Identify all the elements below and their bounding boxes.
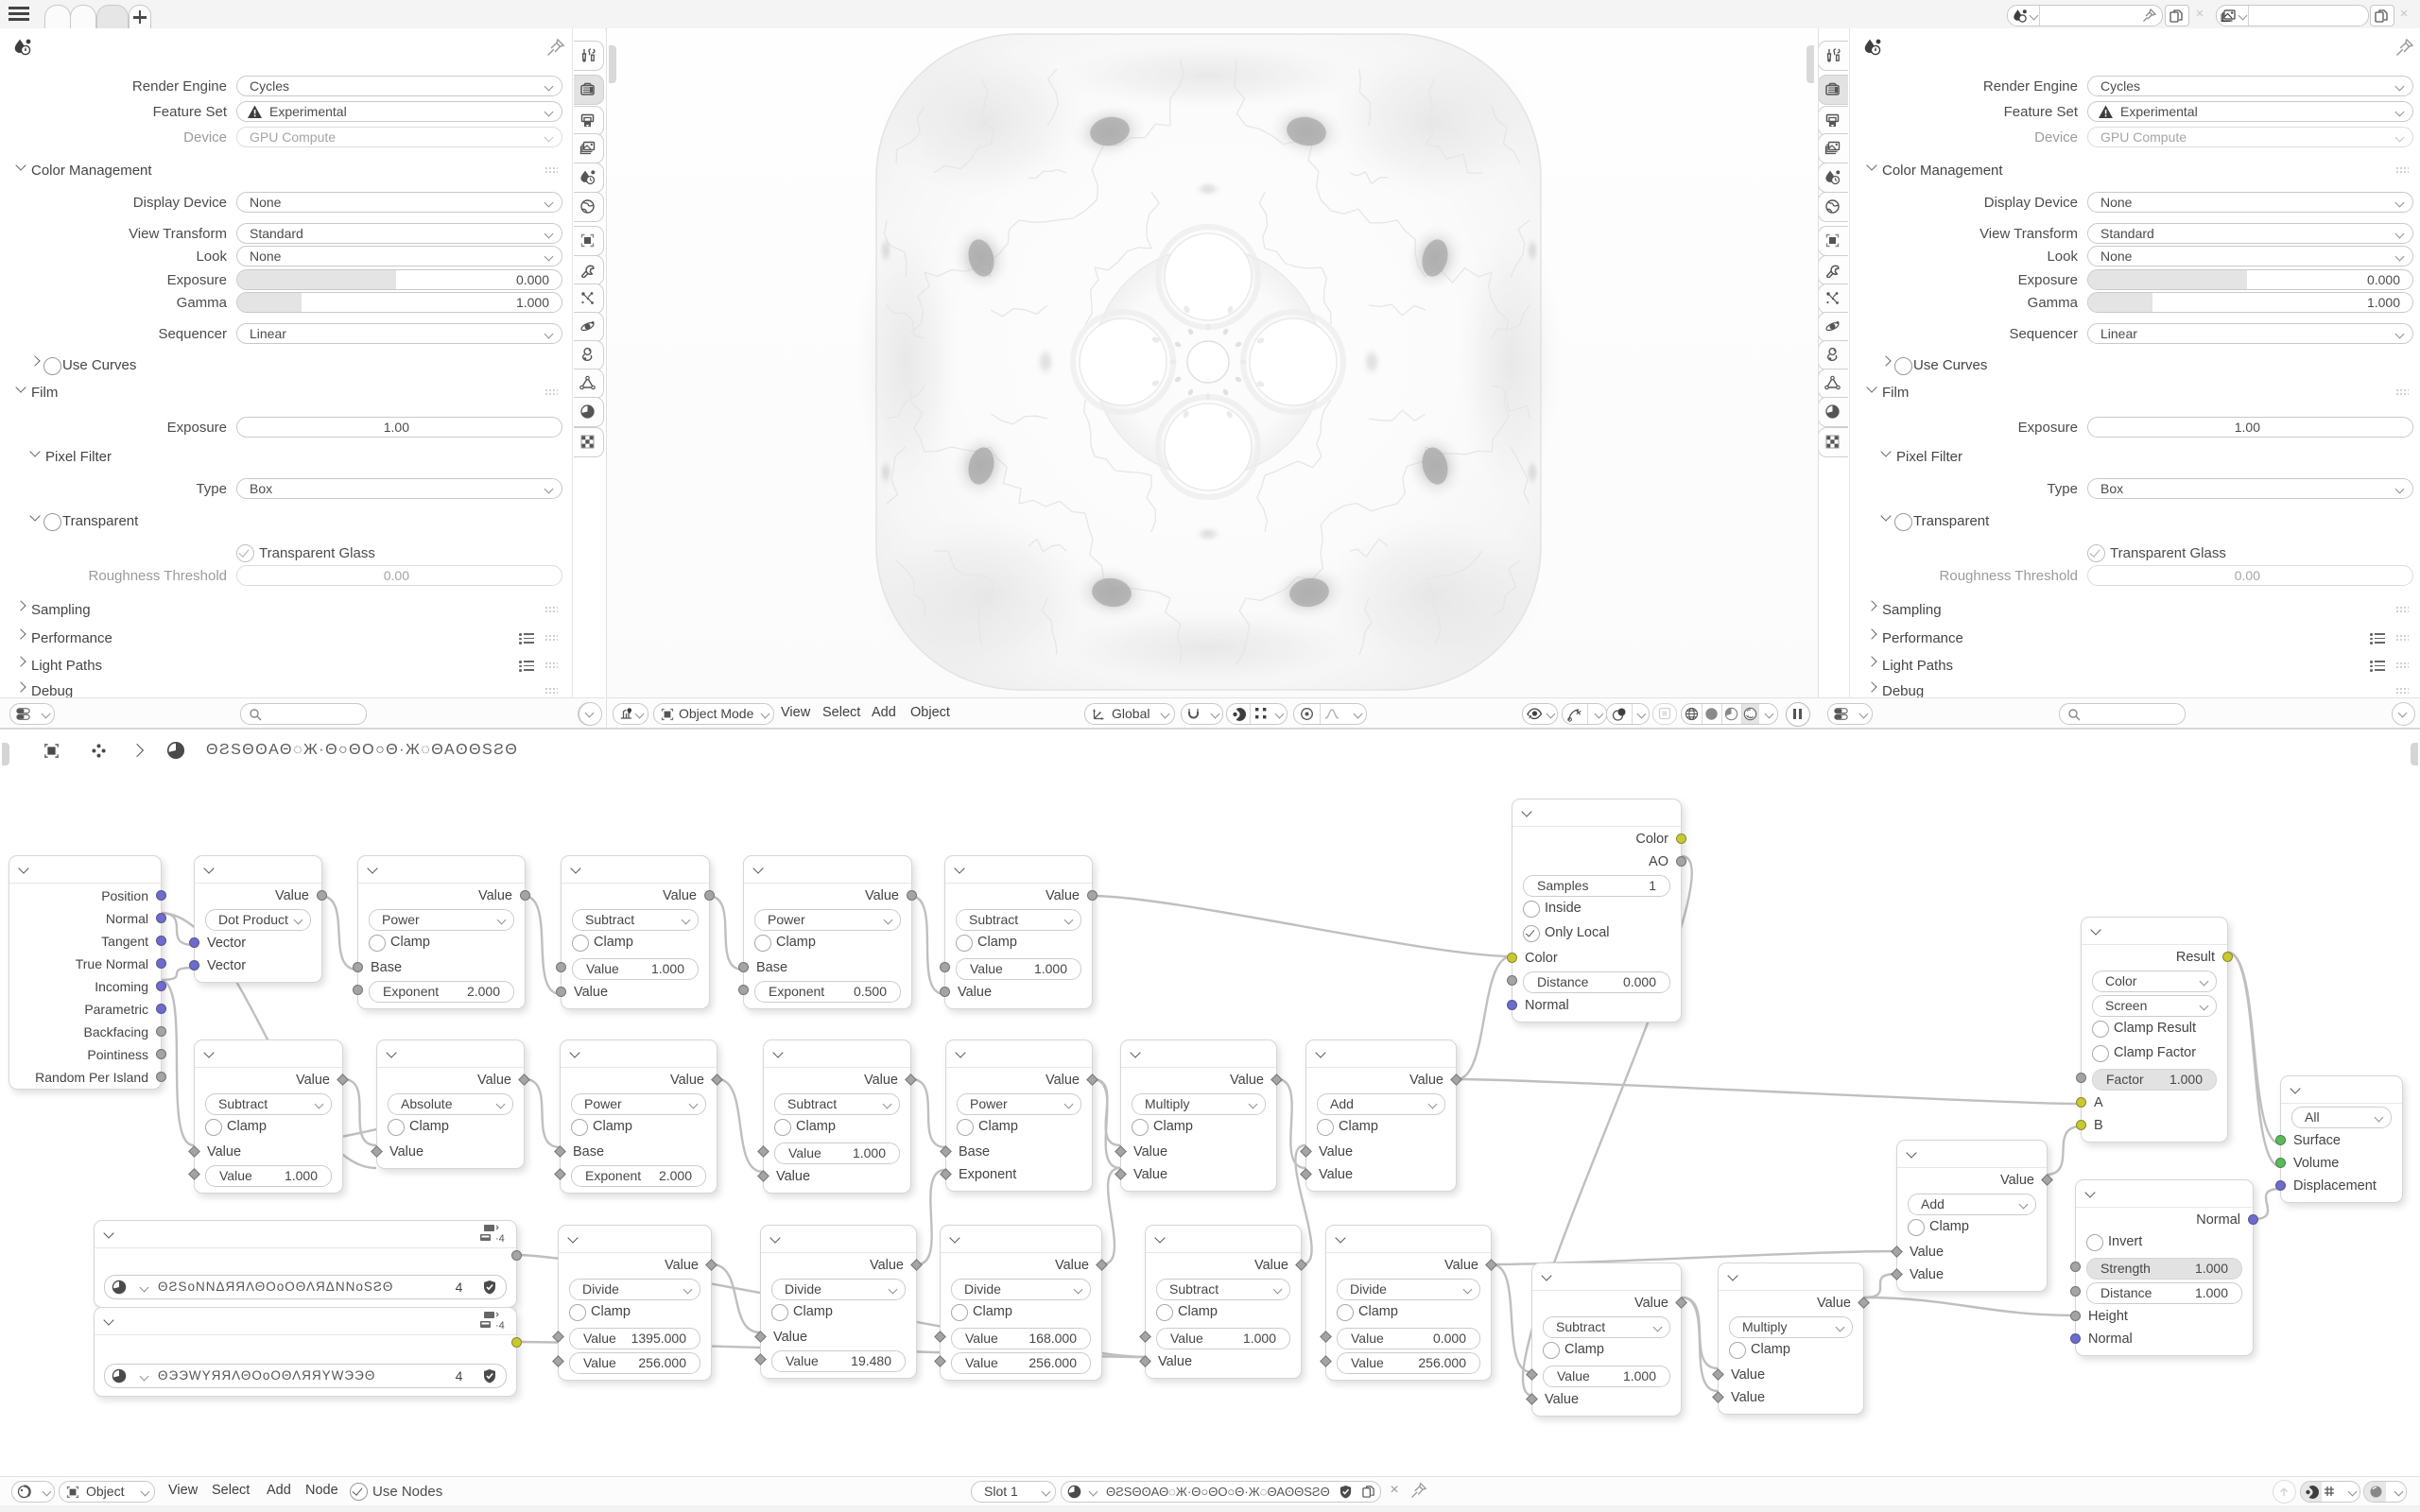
svg-text:·4: ·4 xyxy=(495,1233,505,1245)
svg-text:·4: ·4 xyxy=(495,1320,505,1332)
